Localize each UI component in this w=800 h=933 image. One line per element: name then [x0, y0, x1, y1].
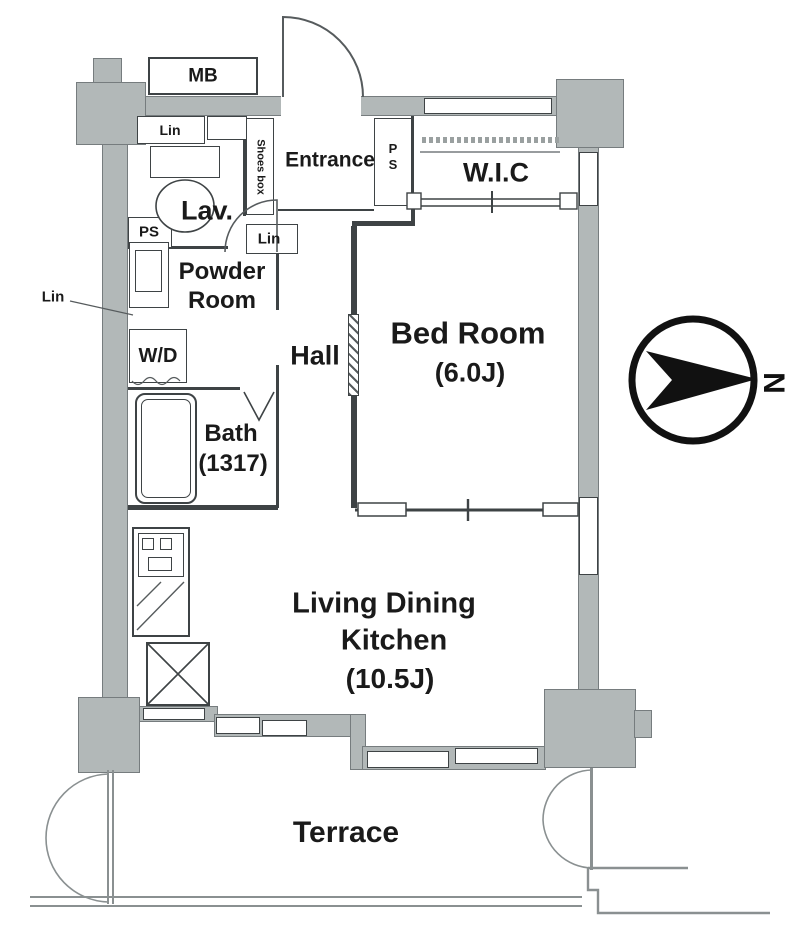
label-linen-mid: Lin [258, 232, 281, 247]
terrace-door-window-a [367, 751, 449, 768]
wall-bath-ldk [128, 505, 278, 510]
label-ldk-1: Living Dining [292, 590, 476, 619]
powder-vanity-sink [135, 250, 162, 292]
terrace-right-door-arcs [543, 770, 592, 868]
terrace-front-edge [30, 896, 582, 907]
window-right-upper [579, 152, 598, 206]
pillar-top-left-stub [93, 58, 122, 84]
compass-icon: N [632, 319, 790, 441]
bedroom-sliding-door [348, 314, 359, 396]
wic-slider-cap-right [560, 193, 577, 209]
north-arrow [646, 351, 757, 410]
terrace-door-window-b [455, 748, 538, 764]
label-shoes-box: Shoes box [255, 139, 266, 195]
pillar-bottom-right-notch [634, 710, 652, 738]
label-linen-left: Lin [42, 290, 65, 305]
label-bath-size: (1317) [198, 452, 267, 476]
stove-burner-1 [142, 538, 154, 550]
window-top-wic [424, 98, 552, 114]
window-kitchen-bottom [143, 708, 205, 720]
compass-north-label: N [757, 372, 790, 394]
label-washer-dryer: W/D [139, 346, 178, 366]
label-pipe-shaft-left: PS [139, 225, 159, 240]
wall-right [578, 147, 599, 693]
label-meter-box: MB [188, 67, 218, 86]
wall-entrance-bedroom [352, 221, 414, 226]
label-lavatory: Lav. [181, 198, 233, 225]
bath-folding-door [244, 392, 274, 420]
wall-powder-hall-upper [276, 252, 279, 310]
wall-powder-bath [128, 387, 240, 390]
compass-circle [632, 319, 754, 441]
pillar-bottom-right [544, 689, 636, 768]
entrance-step-line [278, 209, 374, 211]
label-pipe-shaft-right: PS [387, 141, 400, 173]
toilet-tank [150, 146, 220, 178]
wall-left [102, 116, 128, 708]
ldk-partition-panel-right [543, 503, 578, 516]
terrace-left-door-arcs [46, 774, 108, 902]
pillar-top-left [76, 82, 146, 145]
entrance-door-arc [283, 17, 363, 97]
label-linen-top: Lin [160, 123, 181, 137]
window-right-lower [579, 497, 598, 575]
label-wic: W.I.C [463, 160, 529, 187]
label-ldk-size: (10.5J) [346, 665, 435, 693]
label-bedroom-size: (6.0J) [435, 360, 506, 387]
kitchen-sink [148, 557, 172, 571]
window-ldk-left-b [262, 720, 307, 736]
terrace-right-edge [590, 768, 593, 870]
terrace-step-lines [588, 868, 770, 913]
window-ldk-left-a [216, 717, 260, 734]
label-bath: Bath [204, 422, 257, 446]
label-ldk-2: Kitchen [341, 627, 447, 656]
label-powder-room-1: Powder [179, 260, 266, 284]
wall-bath-hall-lower [276, 365, 279, 508]
pillar-top-right [556, 79, 624, 148]
terrace-left-edge [107, 770, 114, 904]
pillar-bottom-left [78, 697, 140, 773]
lav-basin [207, 116, 247, 140]
ldk-partition-panel-left [358, 503, 406, 516]
label-hall: Hall [290, 343, 340, 370]
label-bedroom: Bed Room [391, 318, 546, 349]
floor-plan: N MB Lin Lav. PS Powder Room Lin W/D Hal… [0, 0, 800, 933]
label-terrace: Terrace [293, 818, 399, 848]
label-powder-room-2: Room [188, 289, 256, 313]
bathtub-inner [141, 399, 191, 498]
entrance-opening [281, 94, 361, 118]
refrigerator-space [146, 642, 210, 706]
label-entrance: Entrance [285, 150, 375, 171]
stove-burner-2 [160, 538, 172, 550]
